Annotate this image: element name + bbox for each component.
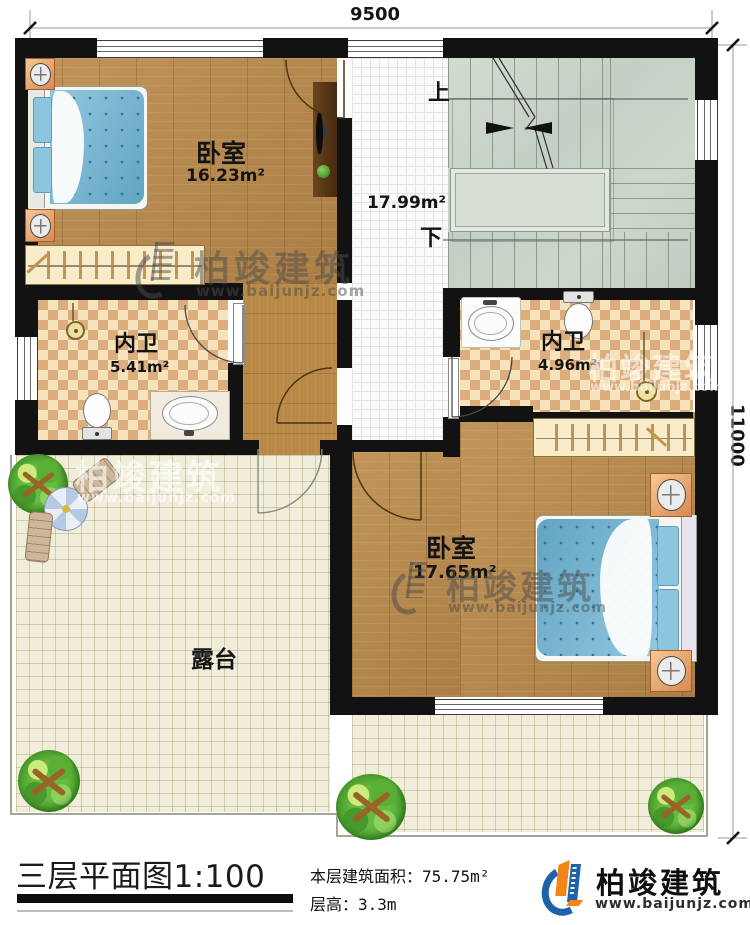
plan-title: 三层平面图1:100 — [16, 851, 265, 896]
bath2-area: 4.96m² — [538, 358, 597, 374]
wall-top-mid — [263, 38, 348, 58]
floor-area-value: 75.75m² — [422, 867, 489, 886]
bath1-ceiling-lamp-icon — [66, 321, 85, 340]
sink-basin-icon — [468, 306, 514, 341]
wall-bath1-top — [15, 283, 243, 300]
tree-icon — [18, 750, 80, 812]
bed2-pillow-top — [657, 526, 679, 586]
bed2-nightstand-top — [650, 473, 692, 517]
toilet-tank-icon — [82, 427, 112, 440]
bedroom1-wardrobe — [25, 245, 205, 285]
floor-plan-canvas: 卧室 16.23m² 17.99m² 上 下 内卫 5.41m² 内卫 4.96… — [0, 0, 750, 925]
wall-right-a — [695, 38, 718, 100]
terrace-railing-bottom-left — [10, 813, 338, 815]
bath1-toilet — [82, 393, 112, 441]
lamp-icon — [30, 214, 51, 238]
stair-up-label: 上 — [428, 82, 450, 105]
window-stair-right — [697, 100, 718, 160]
lamp-icon — [657, 656, 686, 686]
wall-right-b — [695, 160, 718, 325]
desk-monitor-icon — [316, 112, 323, 154]
stair-down-label: 下 — [420, 227, 442, 250]
stair-landing — [450, 168, 610, 232]
bath2-ceiling-lamp-icon — [636, 381, 657, 402]
lamp-icon — [657, 479, 686, 510]
window-bath1-left — [17, 337, 38, 400]
terrace-railing-bottom-right — [336, 835, 708, 837]
terrace-railing-right — [706, 712, 708, 837]
wall-bath2-left-a — [443, 300, 460, 357]
toilet-bowl-icon — [83, 393, 111, 428]
bedroom1-area: 16.23m² — [186, 168, 265, 186]
wall-top-right — [443, 38, 718, 58]
title-underline-bold — [17, 894, 293, 903]
bath2-door-panel — [448, 358, 459, 419]
window-hall-top — [348, 40, 443, 58]
hall-area: 17.99m² — [367, 195, 446, 213]
bedroom1-name: 卧室 — [196, 141, 246, 167]
bath2-sink-counter — [461, 297, 521, 348]
bath1-area: 5.41m² — [110, 360, 169, 376]
floor-area-label: 本层建筑面积： — [310, 867, 422, 886]
bedroom2-wardrobe — [533, 418, 695, 457]
stair-divider — [610, 58, 611, 288]
tree-branch — [660, 793, 691, 819]
bed1-nightstand-top — [25, 58, 55, 90]
bed1-pillow-bottom — [33, 147, 52, 193]
title-block: 三层平面图1:100 本层建筑面积：75.75m² 层高：3.3m 柏竣建筑 w… — [0, 845, 750, 925]
wall-bath1-bottom — [15, 440, 245, 455]
wall-terrace-door-stub-l — [243, 440, 259, 455]
window-bedroom1-top — [97, 40, 263, 58]
window-bedroom2-bottom — [435, 699, 603, 715]
wall-corridor-hall-a — [337, 300, 352, 368]
dimension-top: 9500 — [330, 6, 420, 25]
bed1-pillow-top — [33, 97, 52, 143]
dimension-right: 11000 — [727, 400, 746, 470]
brand-website: www.baijunjz.com — [595, 896, 750, 912]
window-bath2-right — [697, 325, 718, 390]
terrace-railing-left — [10, 455, 12, 815]
wall-bath1-right — [228, 363, 243, 440]
wall-hall-bedroom2 — [330, 440, 460, 452]
stair-flight-side — [611, 168, 695, 232]
wall-bedroom2-left — [330, 452, 352, 712]
bed2-headboard — [681, 515, 696, 660]
sink-faucet-icon — [483, 300, 497, 305]
floor-height-label: 层高： — [310, 895, 358, 914]
bedroom2-name: 卧室 — [426, 536, 476, 562]
bed2-pillow-bottom — [657, 589, 679, 651]
wall-bedroom2-bottom-r — [603, 697, 718, 715]
bed2-nightstand-bottom — [650, 650, 692, 692]
tree-icon — [648, 778, 704, 834]
bath1-door-panel — [233, 303, 245, 365]
corridor-floor — [243, 283, 337, 455]
bath1-name: 内卫 — [114, 333, 158, 356]
lamp-icon — [30, 63, 51, 86]
bed1-nightstand-bottom — [25, 209, 55, 242]
sink-faucet-icon — [184, 430, 194, 436]
floor-height-value: 3.3m — [358, 895, 397, 914]
tree-icon — [336, 774, 406, 840]
wall-right-c — [695, 390, 718, 712]
desk-monitor-stand — [323, 126, 328, 139]
wall-bedroom2-bottom-l — [330, 697, 435, 715]
floor-height-row: 层高：3.3m — [310, 891, 397, 915]
bedroom2-area: 17.65m² — [413, 564, 497, 583]
title-underline-thin — [17, 910, 293, 912]
wall-bath2-bottom — [460, 406, 533, 422]
floor-area-row: 本层建筑面积：75.75m² — [310, 863, 489, 887]
tree-branch — [32, 767, 67, 796]
toilet-tank-icon — [563, 291, 594, 303]
desk-plant-icon — [317, 165, 330, 178]
bath2-name: 内卫 — [541, 331, 585, 354]
brand-logo-icon — [542, 859, 590, 909]
bath1-sink-counter — [150, 391, 230, 440]
tree-branch — [352, 791, 391, 823]
terrace-name: 露台 — [191, 648, 237, 672]
wall-bedroom1-hall — [337, 118, 352, 283]
sink-basin-icon — [162, 396, 218, 431]
